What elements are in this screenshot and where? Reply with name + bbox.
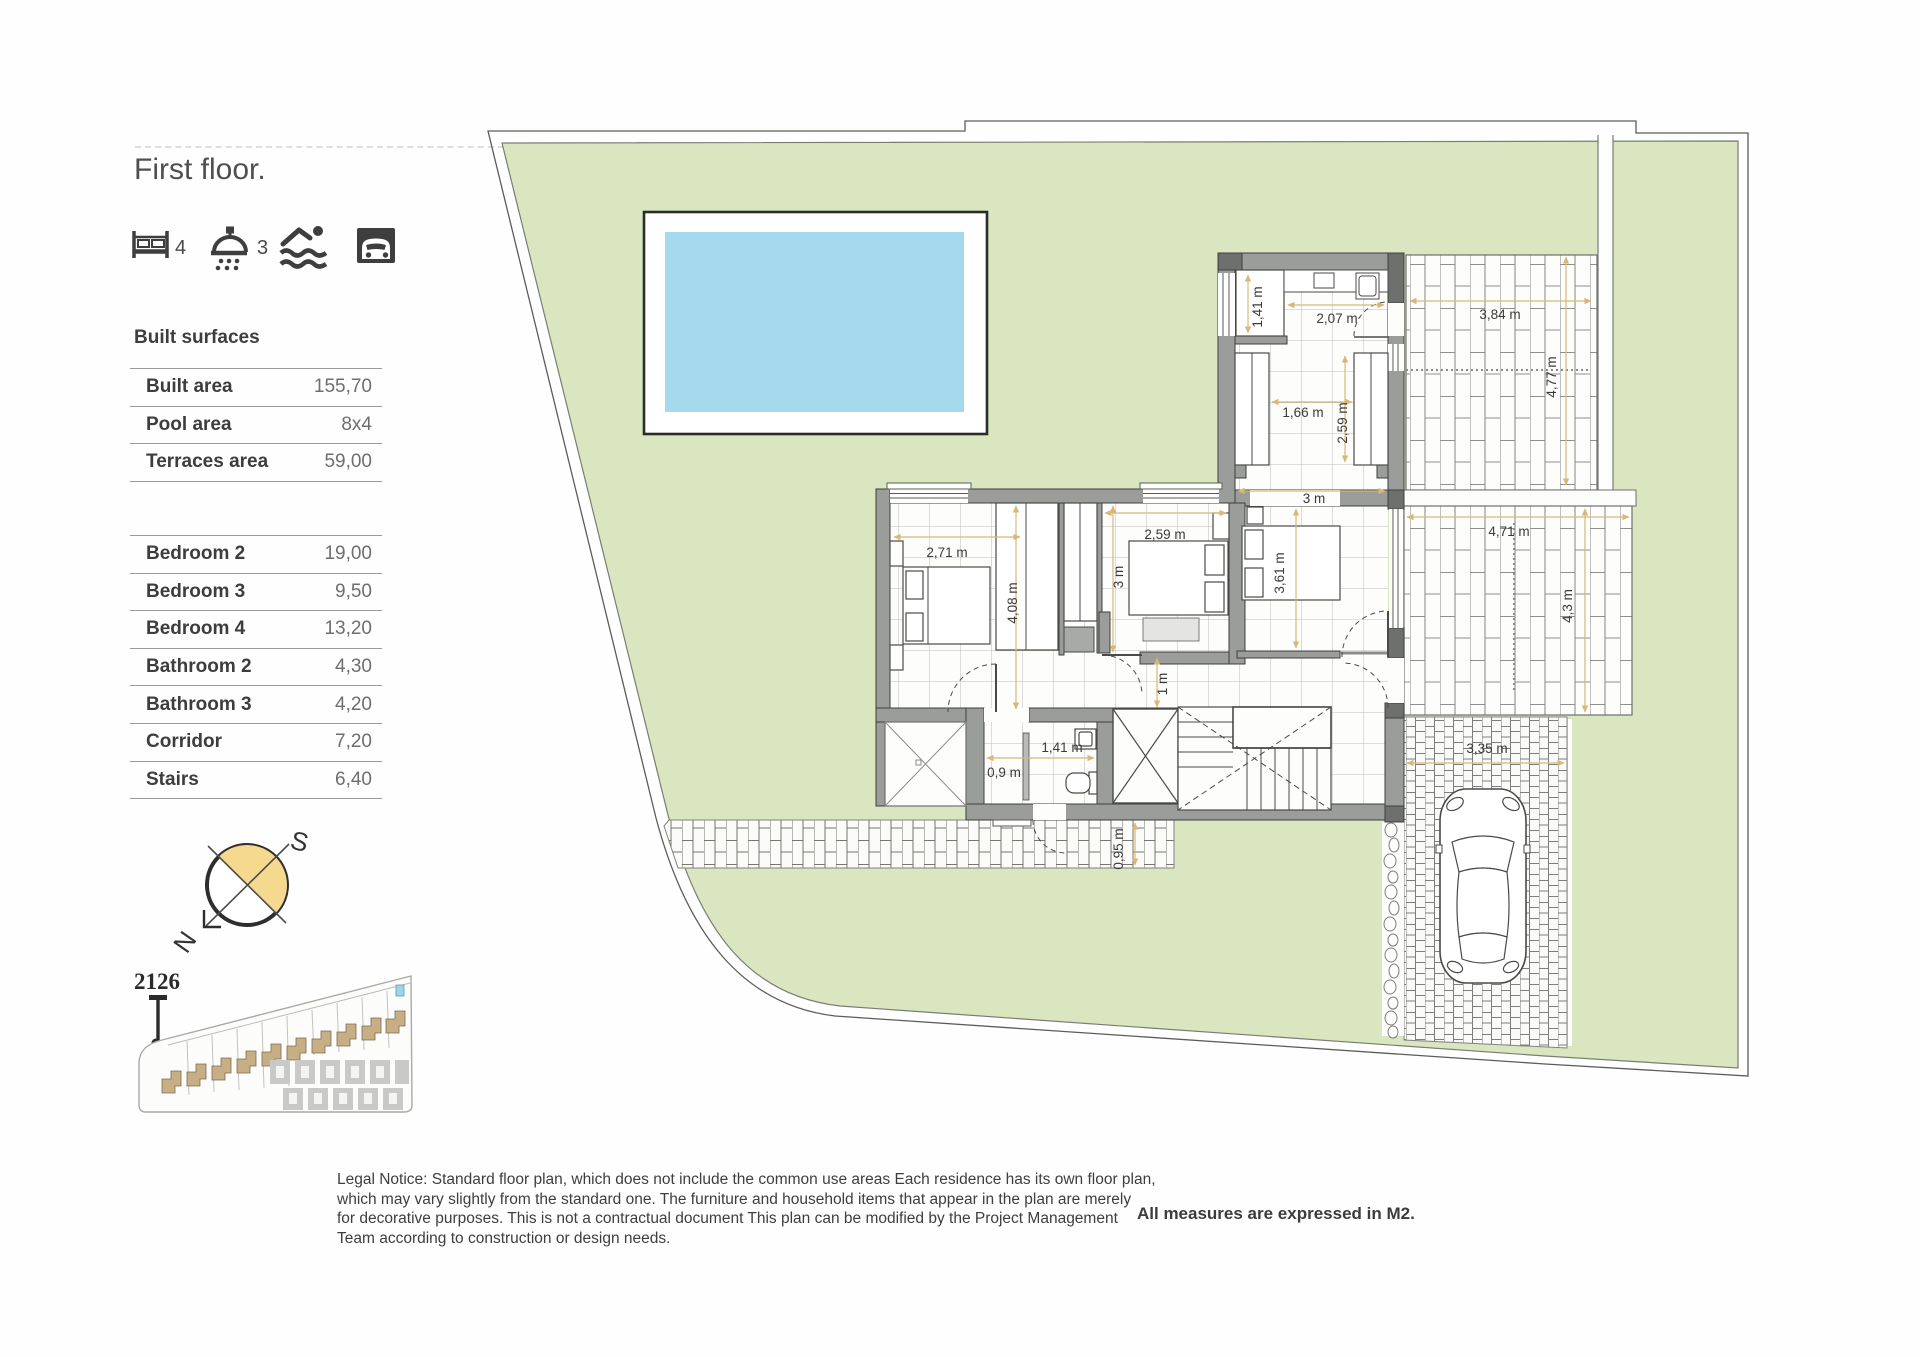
svg-text:S: S (288, 825, 312, 858)
svg-text:2,59 m: 2,59 m (1144, 527, 1185, 542)
svg-text:4,3 m: 4,3 m (1560, 589, 1575, 623)
svg-text:3,35 m: 3,35 m (1466, 741, 1507, 756)
svg-text:1,66 m: 1,66 m (1282, 405, 1323, 420)
svg-text:3 m: 3 m (1303, 491, 1326, 506)
svg-text:2,07 m: 2,07 m (1316, 311, 1357, 326)
svg-text:2,71 m: 2,71 m (926, 545, 967, 560)
svg-text:1,41 m: 1,41 m (1250, 286, 1265, 327)
svg-text:1 m: 1 m (1155, 673, 1170, 696)
svg-text:0,95 m: 0,95 m (1111, 828, 1126, 869)
svg-text:3,84 m: 3,84 m (1479, 307, 1520, 322)
svg-text:3,61 m: 3,61 m (1272, 552, 1287, 593)
svg-text:2126: 2126 (134, 969, 180, 994)
svg-text:2,59 m: 2,59 m (1335, 402, 1350, 443)
svg-text:0,9 m: 0,9 m (987, 765, 1021, 780)
svg-text:3 m: 3 m (1111, 566, 1126, 589)
svg-text:4,08 m: 4,08 m (1005, 582, 1020, 623)
svg-text:N: N (167, 926, 202, 959)
svg-text:4,71 m: 4,71 m (1488, 524, 1529, 539)
svg-text:4,77 m: 4,77 m (1544, 356, 1559, 397)
svg-text:1,41 m: 1,41 m (1041, 740, 1082, 755)
